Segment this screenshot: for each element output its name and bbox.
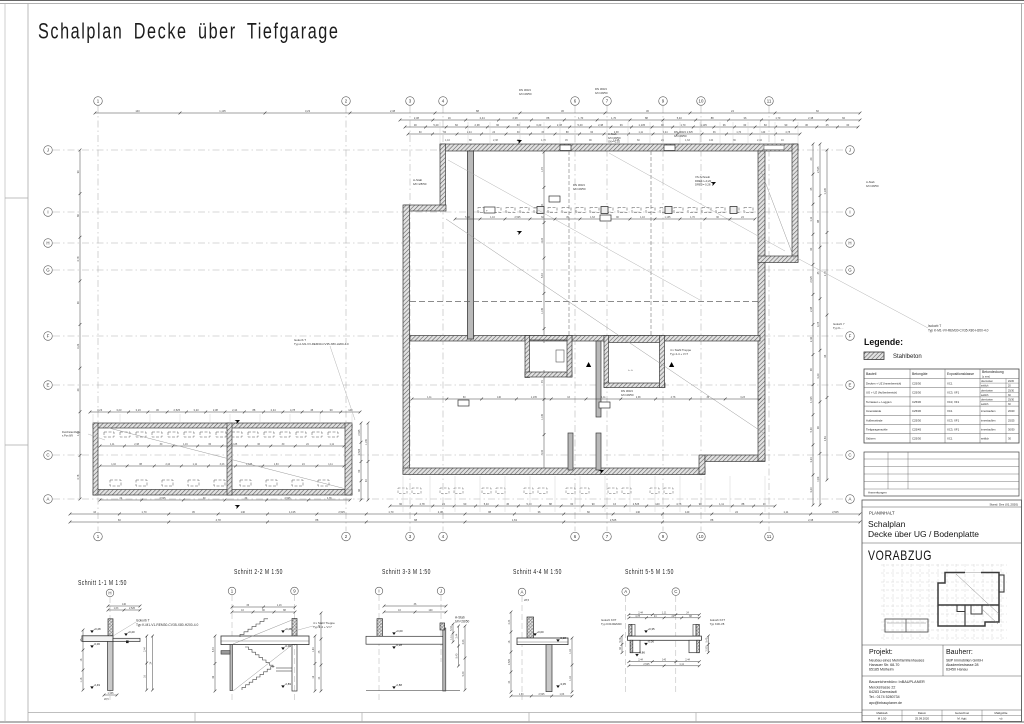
svg-text:PLANINHALT: PLANINHALT — [869, 511, 895, 516]
svg-text:Schalplan Decke über Tiefgarag: Schalplan Decke über Tiefgarage — [38, 19, 339, 44]
svg-text:1,16: 1,16 — [640, 216, 645, 219]
svg-text:G: G — [46, 268, 50, 273]
svg-text:2,525: 2,525 — [174, 408, 181, 412]
svg-text:A: A — [521, 590, 524, 595]
svg-text:1,135: 1,135 — [289, 510, 296, 514]
svg-text:Schnitt 2-2 M 1:50: Schnitt 2-2 M 1:50 — [234, 568, 283, 576]
svg-text:1,70: 1,70 — [611, 116, 617, 120]
svg-text:3,23: 3,23 — [462, 639, 465, 644]
svg-text:b/h=28/50: b/h=28/50 — [455, 620, 469, 624]
svg-text:2,525: 2,525 — [633, 502, 640, 506]
svg-text:140: 140 — [429, 609, 434, 612]
svg-text:-2,49: -2,49 — [94, 683, 101, 687]
svg-text:Schnitt 5-5 M 1:50: Schnitt 5-5 M 1:50 — [625, 568, 674, 576]
svg-text:2,44: 2,44 — [480, 116, 486, 120]
svg-text:5,40: 5,40 — [541, 449, 544, 454]
svg-text:2,525: 2,525 — [610, 518, 617, 522]
svg-text:1,135: 1,135 — [531, 396, 538, 399]
svg-text:30/30: 30/30 — [1008, 428, 1015, 432]
svg-text:SBP Immobilien GmbH: SBP Immobilien GmbH — [946, 659, 983, 663]
svg-text:1,70: 1,70 — [541, 167, 544, 172]
svg-text:140: 140 — [241, 510, 246, 514]
svg-text:1,135: 1,135 — [541, 413, 544, 420]
svg-text:140: 140 — [709, 139, 714, 142]
svg-text:Terrassen + Loggien: Terrassen + Loggien — [866, 400, 892, 404]
svg-text:Betongüte: Betongüte — [912, 372, 928, 376]
svg-text:1,63: 1,63 — [519, 693, 524, 696]
svg-text:Durchstanzbew.: Durchstanzbew. — [62, 430, 81, 434]
svg-text:1,135: 1,135 — [639, 123, 646, 127]
svg-text:Maßstab: Maßstab — [877, 711, 888, 715]
svg-text:3,23: 3,23 — [305, 109, 311, 113]
svg-text:2,44: 2,44 — [663, 131, 668, 134]
svg-text:2,38: 2,38 — [636, 396, 641, 399]
svg-text:2,44: 2,44 — [165, 463, 170, 466]
svg-text:2,44: 2,44 — [467, 131, 472, 134]
svg-text:J: J — [440, 589, 442, 594]
svg-text:XC3, XF1: XC3, XF1 — [947, 391, 960, 395]
svg-text:Typ K-M1-V1-REM30-CV35-X80-H20: Typ K-M1-V1-REM30-CV35-X80-H200-4.0 — [136, 623, 198, 627]
svg-text:M 1:50: M 1:50 — [878, 717, 887, 721]
svg-text:5,40: 5,40 — [541, 273, 544, 278]
svg-text:Bauzeichenbüro: InBAUPLANER: Bauzeichenbüro: InBAUPLANER — [869, 680, 925, 684]
svg-text:1,11: 1,11 — [110, 443, 115, 446]
svg-text:11: 11 — [767, 534, 772, 539]
svg-text:-0,28: -0,28 — [560, 636, 567, 640]
svg-text:J: J — [849, 148, 851, 153]
svg-text:3,23: 3,23 — [116, 408, 122, 412]
svg-text:1,63: 1,63 — [590, 216, 595, 219]
svg-text:4,78: 4,78 — [76, 256, 80, 262]
svg-text:C25/30: C25/30 — [912, 409, 921, 413]
svg-text:5,40: 5,40 — [526, 502, 532, 506]
svg-text:1,11: 1,11 — [450, 635, 453, 640]
svg-text:1,63: 1,63 — [816, 476, 820, 482]
svg-text:4,78: 4,78 — [420, 502, 426, 506]
svg-text:1,135: 1,135 — [541, 307, 544, 314]
svg-text:1,11: 1,11 — [809, 216, 813, 221]
svg-text:b/h=28/50: b/h=28/50 — [413, 182, 427, 186]
svg-text:1,11: 1,11 — [719, 502, 724, 506]
svg-text:innen/außen: innen/außen — [981, 409, 996, 413]
svg-text:-0,06: -0,06 — [94, 642, 101, 646]
svg-text:2,525: 2,525 — [687, 131, 694, 134]
svg-text:b/h=28/50: b/h=28/50 — [866, 184, 879, 188]
svg-text:Maßgröße: Maßgröße — [995, 711, 1008, 715]
svg-text:DRE2=-0,28: DRE2=-0,28 — [695, 183, 711, 187]
svg-text:Decke über UG / Bodenplatte: Decke über UG / Bodenplatte — [868, 529, 979, 539]
svg-text:H: H — [108, 591, 111, 596]
svg-text:2,525: 2,525 — [643, 663, 650, 666]
svg-text:+0,28: +0,28 — [285, 627, 293, 631]
svg-text:28,5: 28,5 — [104, 698, 109, 701]
svg-text:5,40: 5,40 — [450, 626, 453, 631]
svg-text:1,63: 1,63 — [685, 139, 690, 142]
svg-text:4,78: 4,78 — [816, 321, 820, 327]
svg-text:4,78: 4,78 — [676, 502, 682, 506]
svg-text:seitlich: seitlich — [981, 403, 989, 406]
svg-text:5,40: 5,40 — [212, 647, 215, 652]
svg-text:-0,06: -0,06 — [285, 644, 292, 648]
svg-text:Tiefgaragensohle: Tiefgaragensohle — [866, 428, 888, 432]
svg-text:seitlich: seitlich — [981, 394, 989, 397]
svg-text:E: E — [849, 383, 852, 388]
svg-text:Typ K-M1-VV-REM30-CV35-X80-H20: Typ K-M1-VV-REM30-CV35-X80-H200-4.0 — [928, 329, 989, 333]
svg-text:C25/30: C25/30 — [912, 400, 921, 404]
svg-text:5,40: 5,40 — [809, 427, 813, 433]
svg-text:+0,20: +0,20 — [128, 630, 136, 634]
svg-text:innen/außen: innen/außen — [981, 418, 996, 422]
svg-text:XC1: XC1 — [947, 437, 953, 441]
svg-text:3,23: 3,23 — [816, 373, 820, 379]
svg-text:3,23: 3,23 — [97, 408, 103, 412]
svg-text:Typ A-M1-VV-REM30-CV35-X80-H20: Typ A-M1-VV-REM30-CV35-X80-H200-4.0 — [294, 342, 349, 346]
svg-text:1,135: 1,135 — [108, 692, 115, 695]
svg-text:M. Agić: M. Agić — [957, 717, 967, 721]
svg-text:2,525: 2,525 — [160, 497, 167, 500]
svg-text:140: 140 — [761, 131, 766, 134]
svg-text:2,525: 2,525 — [338, 510, 345, 514]
svg-text:Bauteil: Bauteil — [866, 372, 877, 376]
svg-text:+0,00: +0,00 — [537, 630, 545, 634]
svg-text:C: C — [848, 453, 851, 458]
svg-text:2,525: 2,525 — [129, 607, 136, 610]
svg-text:2,44: 2,44 — [508, 619, 511, 624]
svg-text:4,78: 4,78 — [290, 408, 296, 412]
svg-text:2,38: 2,38 — [390, 109, 396, 113]
svg-text:F: F — [47, 334, 50, 339]
svg-text:1,11: 1,11 — [639, 131, 644, 134]
svg-text:64283 Darmstadt: 64283 Darmstadt — [869, 690, 897, 694]
svg-text:2,525: 2,525 — [539, 693, 546, 696]
svg-text:-3,05: -3,05 — [560, 682, 567, 686]
svg-text:2,44: 2,44 — [809, 336, 813, 342]
svg-text:2,38: 2,38 — [493, 139, 498, 142]
svg-text:b/h=28/50: b/h=28/50 — [519, 92, 532, 96]
svg-text:2,38: 2,38 — [557, 123, 563, 127]
svg-text:1,70: 1,70 — [388, 510, 394, 514]
svg-text:1,70: 1,70 — [736, 131, 741, 134]
svg-text:I: I — [47, 210, 48, 215]
svg-text:Außenwände: Außenwände — [866, 418, 883, 422]
svg-text:1,63: 1,63 — [114, 607, 119, 610]
svg-text:seitlich: seitlich — [981, 437, 989, 441]
svg-text:2,44: 2,44 — [271, 408, 277, 412]
svg-text:140: 140 — [662, 659, 667, 662]
svg-text:5,40: 5,40 — [577, 123, 583, 127]
svg-text:2,38: 2,38 — [809, 306, 813, 312]
svg-text:+0,28: +0,28 — [94, 627, 102, 631]
svg-text:Neubau eines Mehrfamilienhause: Neubau eines Mehrfamilienhauses — [869, 659, 925, 663]
svg-text:4,78: 4,78 — [327, 497, 332, 500]
svg-text:3,23: 3,23 — [541, 237, 544, 242]
svg-text:10: 10 — [699, 99, 704, 104]
svg-text:2,525: 2,525 — [285, 497, 292, 500]
svg-text:10: 10 — [699, 534, 704, 539]
svg-text:1,63: 1,63 — [274, 463, 279, 466]
svg-text:4,78: 4,78 — [216, 518, 222, 522]
svg-text:3,23: 3,23 — [536, 123, 542, 127]
svg-text:5,40: 5,40 — [705, 637, 708, 642]
svg-text:25/30: 25/30 — [1008, 389, 1015, 392]
svg-text:2,525: 2,525 — [816, 166, 820, 173]
svg-text:63450 Hanau: 63450 Hanau — [946, 668, 968, 672]
svg-text:Schnitt 4-4 M 1:50: Schnitt 4-4 M 1:50 — [513, 568, 562, 576]
svg-text:1,70: 1,70 — [142, 510, 148, 514]
svg-text:2,38: 2,38 — [438, 510, 444, 514]
svg-text:C25/30: C25/30 — [912, 437, 921, 441]
svg-text:5,40: 5,40 — [456, 653, 459, 658]
svg-text:innen/außen: innen/außen — [981, 428, 996, 432]
svg-text:1,16: 1,16 — [277, 604, 282, 607]
svg-text:2,38: 2,38 — [512, 116, 518, 120]
svg-text:140: 140 — [497, 396, 502, 399]
svg-text:OK=-0,10: OK=-0,10 — [608, 140, 620, 144]
svg-text:-0,06: -0,06 — [648, 639, 655, 643]
svg-text:oben/unten: oben/unten — [981, 389, 994, 392]
svg-text:Typ 2-4 + V=7: Typ 2-4 + V=7 — [313, 625, 332, 629]
svg-text:3,23: 3,23 — [220, 463, 225, 466]
svg-text:C: C — [46, 453, 49, 458]
svg-text:5,40: 5,40 — [465, 216, 470, 219]
svg-text:5,40: 5,40 — [433, 123, 439, 127]
svg-text:Typ 2-4 + V=7: Typ 2-4 + V=7 — [670, 352, 689, 356]
svg-text:20/20: 20/20 — [1008, 409, 1015, 413]
svg-text:Decken + UZ (Innenbereich): Decken + UZ (Innenbereich) — [866, 382, 901, 386]
svg-text:+0,35: +0,35 — [648, 627, 656, 631]
svg-text:1,11: 1,11 — [427, 396, 432, 399]
svg-text:140: 140 — [122, 603, 127, 606]
svg-text:2,38: 2,38 — [414, 116, 420, 120]
svg-text:Stand: Dez (01.2020): Stand: Dez (01.2020) — [989, 503, 1018, 507]
svg-text:2,38: 2,38 — [808, 518, 814, 522]
svg-text:1,16: 1,16 — [490, 216, 495, 219]
svg-text:2,525: 2,525 — [358, 429, 361, 436]
svg-text:1,11: 1,11 — [662, 612, 667, 615]
svg-text:20/20: 20/20 — [1008, 380, 1015, 383]
svg-text:-2,88: -2,88 — [396, 683, 403, 687]
svg-text:Isokorb T: Isokorb T — [928, 324, 941, 328]
svg-text:3,23: 3,23 — [136, 408, 142, 412]
svg-text:2,525: 2,525 — [705, 645, 708, 652]
svg-text:2,38: 2,38 — [808, 116, 814, 120]
svg-text:1,11: 1,11 — [601, 396, 606, 399]
svg-text:Tel.: 0174 5280734: Tel.: 0174 5280734 — [869, 695, 900, 699]
svg-text:A: A — [849, 497, 852, 502]
svg-text:2,44: 2,44 — [456, 633, 459, 638]
svg-text:1,11: 1,11 — [193, 463, 198, 466]
svg-text:2,525: 2,525 — [832, 510, 839, 514]
svg-text:1,63: 1,63 — [512, 518, 518, 522]
svg-text:3,23: 3,23 — [76, 343, 80, 349]
svg-text:1,16: 1,16 — [111, 463, 116, 466]
svg-text:C25/30: C25/30 — [912, 382, 921, 386]
svg-text:-0,86: -0,86 — [639, 650, 646, 654]
svg-text:2,38: 2,38 — [134, 443, 139, 446]
svg-text:1,11: 1,11 — [328, 463, 333, 466]
svg-text:2,38: 2,38 — [213, 408, 219, 412]
svg-text:Legende:: Legende: — [864, 337, 903, 347]
svg-text:+: + — [486, 209, 488, 213]
svg-text:Schnitt 1-1 M 1:50: Schnitt 1-1 M 1:50 — [78, 579, 127, 587]
svg-text:(c mm): (c mm) — [982, 375, 990, 379]
svg-text:1,135: 1,135 — [823, 187, 827, 194]
svg-text:1,16: 1,16 — [569, 676, 572, 681]
svg-text:3,23: 3,23 — [194, 408, 200, 412]
svg-text:Projekt:: Projekt: — [869, 649, 893, 656]
svg-text:28,5: 28,5 — [524, 598, 530, 602]
svg-text:E: E — [47, 383, 50, 388]
svg-text:1,135: 1,135 — [231, 443, 238, 446]
svg-text:F: F — [849, 334, 852, 339]
svg-text:2,44: 2,44 — [757, 139, 762, 142]
svg-text:11: 11 — [767, 99, 772, 104]
svg-text:b/h=28/50: b/h=28/50 — [573, 187, 586, 191]
svg-text:oben/unten: oben/unten — [981, 399, 994, 402]
svg-text:C25/45: C25/45 — [912, 428, 921, 432]
svg-text:seitlich: seitlich — [981, 385, 989, 388]
svg-text:3,23: 3,23 — [809, 457, 813, 463]
svg-text:4,78: 4,78 — [635, 615, 640, 618]
svg-text:XC3, XF1: XC3, XF1 — [947, 400, 960, 404]
svg-text:XC1: XC1 — [947, 382, 953, 386]
svg-text:-0,28: -0,28 — [396, 643, 403, 647]
svg-text:140: 140 — [685, 510, 690, 514]
svg-text:4,78: 4,78 — [76, 474, 80, 480]
svg-text:1,16: 1,16 — [80, 677, 83, 682]
svg-text:H: H — [46, 241, 49, 246]
svg-text:A: A — [47, 497, 50, 502]
svg-text:2,44: 2,44 — [638, 659, 643, 662]
svg-text:25.09.2020: 25.09.2020 — [915, 717, 929, 721]
svg-text:Typ K-...: Typ K-... — [833, 326, 844, 330]
svg-text:3,23: 3,23 — [740, 396, 745, 399]
svg-text:Innenwände: Innenwände — [866, 409, 882, 413]
svg-text:Stützen: Stützen — [866, 437, 876, 441]
svg-text:1,135: 1,135 — [219, 109, 226, 113]
svg-text:4x St: 4x St — [628, 369, 633, 372]
svg-text:1,63: 1,63 — [560, 693, 565, 696]
svg-text:Anmerkungen: Anmerkungen — [868, 491, 887, 495]
svg-text:25/30: 25/30 — [1008, 399, 1015, 402]
svg-text:1,135: 1,135 — [700, 123, 707, 127]
svg-text:Betondeckung: Betondeckung — [982, 370, 1004, 374]
svg-text:1,63: 1,63 — [823, 436, 827, 442]
svg-text:Merckstrasse 22: Merckstrasse 22 — [869, 686, 895, 690]
svg-text:Stahlbeton: Stahlbeton — [893, 354, 922, 360]
svg-text:b/h=28/50: b/h=28/50 — [674, 134, 687, 138]
svg-text:b/h=28/50: b/h=28/50 — [621, 393, 634, 397]
svg-text:2,525: 2,525 — [358, 448, 361, 455]
svg-text:XC3, XF1: XC3, XF1 — [947, 428, 960, 432]
svg-text:Typ K30-REM30: Typ K30-REM30 — [601, 622, 622, 626]
svg-text:4,78: 4,78 — [785, 131, 790, 134]
svg-text:UG + UZ (Außenbereich): UG + UZ (Außenbereich) — [866, 391, 897, 395]
svg-text:I: I — [849, 210, 850, 215]
svg-text:2,525: 2,525 — [809, 276, 813, 283]
svg-text:XC1: XC1 — [947, 409, 953, 413]
svg-text:1,11: 1,11 — [784, 510, 789, 514]
svg-text:G: G — [848, 268, 852, 273]
svg-text:2,44: 2,44 — [144, 647, 147, 652]
svg-text:65185 Mülheim: 65185 Mülheim — [869, 668, 894, 672]
svg-text:2,38: 2,38 — [475, 123, 481, 127]
svg-text:VORABZUG: VORABZUG — [868, 548, 932, 564]
svg-text:1,70: 1,70 — [541, 139, 546, 142]
svg-text:Hanauer Str. 68-70: Hanauer Str. 68-70 — [869, 663, 899, 667]
svg-text:1,16: 1,16 — [569, 649, 572, 654]
svg-text:140: 140 — [636, 510, 641, 514]
svg-text:Datum: Datum — [918, 711, 927, 715]
svg-text:5,40: 5,40 — [484, 502, 490, 506]
svg-text:2,38: 2,38 — [598, 123, 604, 127]
svg-text:5,40: 5,40 — [462, 671, 465, 676]
svg-text:Gezeichnet: Gezeichnet — [955, 711, 969, 715]
svg-text:2,525: 2,525 — [515, 216, 522, 219]
svg-text:1,70: 1,70 — [690, 216, 695, 219]
svg-text:Schalplan: Schalplan — [868, 519, 906, 529]
svg-text:J: J — [47, 148, 49, 153]
svg-text:5,40: 5,40 — [619, 637, 622, 642]
svg-text:Expositionsklasse: Expositionsklasse — [947, 372, 974, 376]
svg-text:5,40: 5,40 — [677, 116, 683, 120]
svg-text:1,11: 1,11 — [679, 663, 684, 666]
svg-text:1,135: 1,135 — [665, 216, 672, 219]
svg-text:Akademiestrasse 28: Akademiestrasse 28 — [946, 663, 979, 667]
svg-text:25/25: 25/25 — [1008, 418, 1015, 422]
svg-text:3,23: 3,23 — [809, 487, 813, 493]
svg-text:b/h=28/50: b/h=28/50 — [595, 91, 608, 95]
svg-text:140: 140 — [348, 408, 353, 412]
svg-text:1,70: 1,70 — [775, 116, 781, 120]
svg-text:C25/30: C25/30 — [912, 391, 921, 395]
svg-text:1,16: 1,16 — [183, 443, 188, 446]
svg-text:Schnitt 3-3 M 1:50: Schnitt 3-3 M 1:50 — [382, 568, 431, 576]
svg-text:Bauherr:: Bauherr: — [946, 649, 973, 656]
svg-text:A: A — [624, 589, 627, 594]
svg-text:XC3, XF1: XC3, XF1 — [947, 418, 960, 422]
svg-text:apc@inbauplaner.de: apc@inbauplaner.de — [869, 701, 902, 705]
svg-text:1,16: 1,16 — [445, 139, 450, 142]
svg-text:1,70: 1,70 — [680, 123, 686, 127]
svg-text:2,44: 2,44 — [685, 659, 690, 662]
svg-text:140: 140 — [655, 502, 660, 506]
svg-text:2,44: 2,44 — [232, 408, 238, 412]
svg-text:1,135: 1,135 — [365, 439, 368, 446]
svg-text:4,78: 4,78 — [671, 396, 676, 399]
svg-text:C25/30: C25/30 — [912, 418, 921, 422]
svg-text:1,70: 1,70 — [578, 116, 584, 120]
svg-text:vö: vö — [1000, 717, 1003, 721]
svg-text:-2,89: -2,89 — [285, 682, 292, 686]
svg-text:H: H — [848, 241, 851, 246]
svg-text:1,135: 1,135 — [809, 396, 813, 403]
svg-text:Typ K30-V8: Typ K30-V8 — [710, 622, 725, 626]
svg-text:oben/unten: oben/unten — [981, 380, 994, 383]
svg-text:1,11: 1,11 — [330, 443, 335, 446]
svg-text:1,63: 1,63 — [312, 647, 315, 652]
svg-text:+0,00: +0,00 — [396, 629, 404, 633]
svg-text:2,525: 2,525 — [508, 658, 511, 665]
svg-text:s.Pos 8/9: s.Pos 8/9 — [62, 434, 73, 438]
svg-text:C: C — [674, 589, 677, 594]
svg-text:140: 140 — [135, 109, 140, 113]
svg-text:I: I — [378, 589, 379, 594]
